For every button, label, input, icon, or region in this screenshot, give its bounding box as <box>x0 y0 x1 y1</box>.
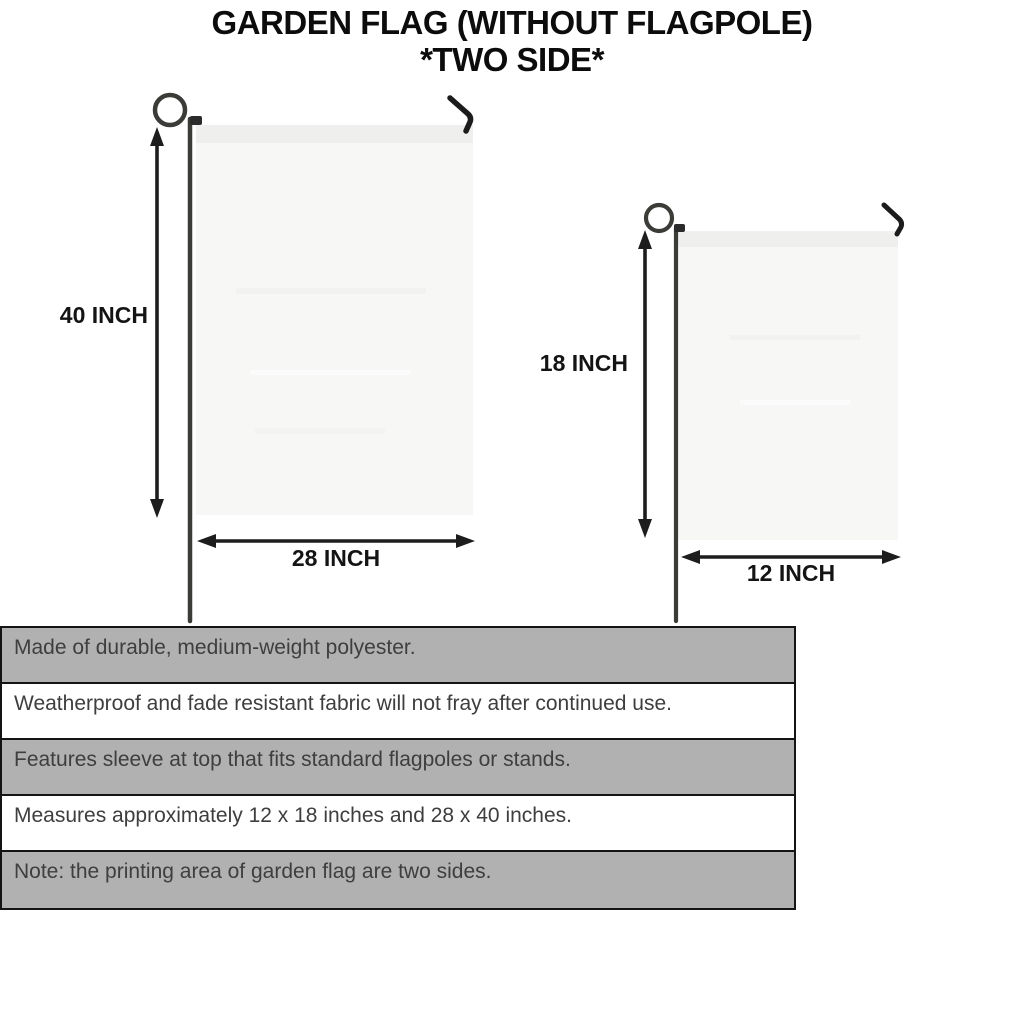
small-height-arrow <box>638 230 652 538</box>
feature-row: Note: the printing area of garden flag a… <box>2 852 794 908</box>
title-line-2: *TWO SIDE* <box>0 41 1024 78</box>
title-line-1: GARDEN FLAG (WITHOUT FLAGPOLE) <box>0 4 1024 41</box>
large-flag-width-label: 28 INCH <box>236 545 436 571</box>
page-title: GARDEN FLAG (WITHOUT FLAGPOLE) *TWO SIDE… <box>0 4 1024 78</box>
large-flag-diagram <box>150 95 475 621</box>
large-pole-clip-icon <box>190 116 202 125</box>
small-pole-clip-icon <box>674 224 685 232</box>
small-flag-diagram <box>638 205 902 621</box>
features-table: Made of durable, medium-weight polyester… <box>0 626 796 910</box>
feature-row: Made of durable, medium-weight polyester… <box>2 628 794 684</box>
small-flag-fabric <box>678 231 898 540</box>
small-flag-sleeve <box>678 231 898 247</box>
large-flag-sleeve <box>196 125 473 143</box>
large-pole-loop-icon <box>155 95 185 125</box>
large-flag-fabric <box>196 125 473 515</box>
small-hook-icon <box>884 205 902 234</box>
large-height-arrow <box>150 127 164 518</box>
feature-row: Features sleeve at top that fits standar… <box>2 740 794 796</box>
feature-row: Weatherproof and fade resistant fabric w… <box>2 684 794 740</box>
feature-row: Measures approximately 12 x 18 inches an… <box>2 796 794 852</box>
small-pole-loop-icon <box>646 205 672 231</box>
small-flag-height-label: 18 INCH <box>510 350 628 376</box>
large-flag-height-label: 40 INCH <box>30 302 148 328</box>
small-flag-width-label: 12 INCH <box>691 560 891 586</box>
